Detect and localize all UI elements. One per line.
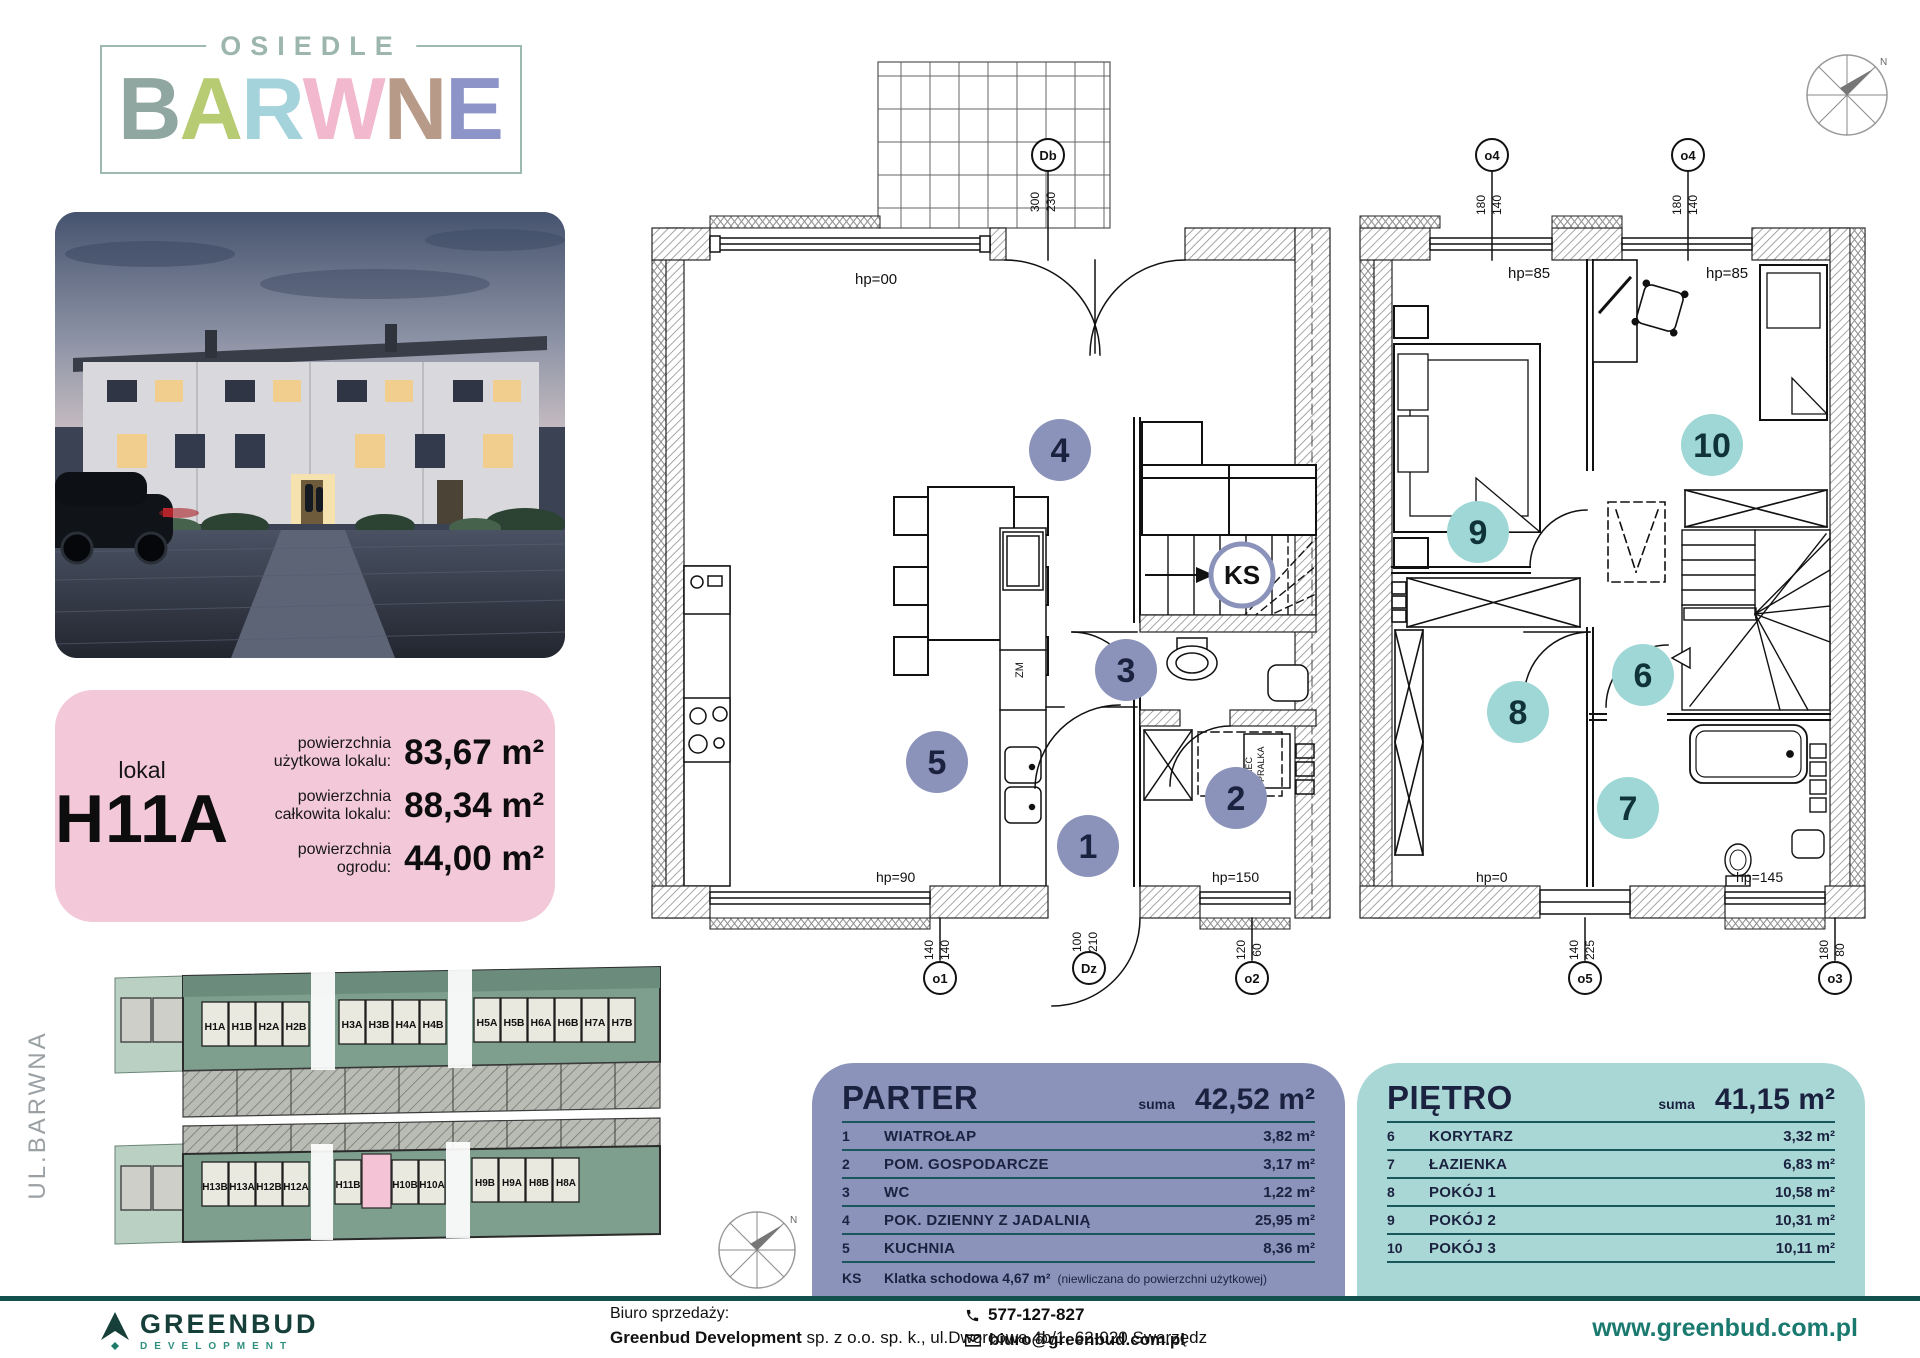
svg-text:140: 140 [1686,195,1700,215]
staircase-row: KS Klatka schodowa 4,67 m² (niewliczana … [842,1263,1315,1286]
site-unit-label: H1A [204,1021,225,1033]
stairs-up [1672,530,1830,710]
hp-label: hp=85 [1706,265,1748,282]
table-row: 1 WIATROŁAP 3,82 m² [842,1123,1315,1151]
room-number: 8 [1509,694,1528,732]
site-unit-label: H12B [256,1182,282,1193]
phone-icon [965,1308,980,1323]
site-unit-label: H6A [530,1017,551,1029]
ks-label: KS [1224,560,1260,590]
detached-house [153,1166,183,1210]
svg-text:o5: o5 [1577,971,1592,986]
svg-text:140: 140 [938,940,952,960]
svg-text:230: 230 [1044,192,1058,212]
table-row: 8 POKÓJ 1 10,58 m² [1387,1179,1835,1207]
wardrobe-9 [1392,578,1580,627]
site-unit-label: H13B [202,1182,228,1193]
window-o5 [1540,890,1630,914]
wc-sink [1268,665,1308,701]
phone-number[interactable]: 577-127-827 [988,1305,1084,1325]
logo-osiedle-barwne: OSIEDLE B A R W N E [100,45,522,174]
room-number: 10 [1693,427,1731,465]
email-icon [965,1334,981,1347]
sofa [1142,422,1316,535]
detached-house [153,998,183,1042]
wardrobe-8 [1395,630,1423,855]
site-unit-label: H10B [392,1180,418,1191]
parter-title: PARTER [842,1079,1138,1117]
usable-area-value: 83,67 m² [404,733,554,773]
svg-text:140: 140 [1567,940,1581,960]
pietro-suma-value: 41,15 m² [1715,1083,1835,1117]
site-unit-label: H7A [584,1017,605,1029]
window-top [710,236,990,252]
room-number: 7 [1619,790,1638,828]
area-row-total: powierzchniacałkowita lokalu: 88,34 m² [229,786,554,826]
area-row-usable: powierzchniaużytkowa lokalu: 83,67 m² [229,733,554,773]
room-number: 4 [1051,432,1070,470]
hp-label: hp=150 [1212,869,1259,885]
pietro-header: PIĘTRO suma 41,15 m² [1387,1079,1835,1117]
site-unit-label: H13A [229,1182,255,1193]
site-unit-label: H5A [476,1017,497,1029]
room-number: 9 [1469,514,1488,552]
greenbud-logo: GREENBUD DEVELOPMENT [100,1310,319,1352]
marker-o5: 140 225 o5 [1567,918,1601,994]
fridge [1003,532,1043,590]
window-o3 [1725,892,1825,904]
svg-text:o2: o2 [1244,971,1259,986]
svg-text:o4: o4 [1484,148,1500,163]
site-unit-label: H3A [341,1019,362,1031]
greenbud-logo-icon [100,1310,130,1352]
svg-text:Dz: Dz [1081,961,1097,976]
compass-n-label: N [1880,57,1887,68]
table-row: 7 ŁAZIENKA 6,83 m² [1387,1151,1835,1179]
parter-table: PARTER suma 42,52 m² 1 WIATROŁAP 3,82 m²… [812,1063,1345,1296]
detached-house [121,1166,151,1210]
footer: GREENBUD DEVELOPMENT Biuro sprzedaży: Gr… [0,1301,1920,1358]
email-address[interactable]: biuro@greenbud.com.pl [989,1330,1185,1350]
site-unit-label: H7B [611,1017,632,1029]
parter-suma-value: 42,52 m² [1195,1083,1315,1117]
area-rows: powierzchniaużytkowa lokalu: 83,67 m² po… [229,733,572,879]
building-photo-art [55,212,565,658]
bathtub [1690,725,1807,783]
table-row: 9 POKÓJ 2 10,31 m² [1387,1207,1835,1235]
terrace-pergola-grid [878,62,1110,228]
site-unit-label: H8A [556,1178,576,1189]
hp-label: hp=85 [1508,265,1550,282]
logo-letter: W [303,65,386,153]
logo-osiedle-text: OSIEDLE [206,31,416,62]
room-number: 5 [928,744,947,782]
svg-text:140: 140 [922,940,936,960]
hp-label: hp=90 [876,869,916,885]
marker-dz: 100 210 Dz [1070,932,1105,984]
site-unit-highlight-H11A [362,1154,391,1208]
svg-text:180: 180 [1670,195,1684,215]
site-unit-label: H5B [503,1017,524,1029]
brand-name: GREENBUD [140,1311,319,1338]
window-o4-right [1622,238,1752,250]
parter-header: PARTER suma 42,52 m² [842,1079,1315,1117]
table-row: 4 POK. DZIENNY Z JADALNIĄ 25,95 m² [842,1207,1315,1235]
site-unit-label: H3B [368,1019,389,1031]
hp-label: hp=0 [1476,869,1508,885]
unit-id-block: lokal H11A [55,757,229,855]
suma-label: suma [1658,1096,1695,1112]
table-row: 3 WC 1,22 m² [842,1179,1315,1207]
site-units-bottom: H13B H13A H12B H12A H11B H10B H10A H9B H… [202,1154,579,1208]
compass-rose: N [1807,55,1887,135]
area-row-garden: powierzchniaogrodu: 44,00 m² [229,839,554,879]
company-name: Greenbud Development [610,1328,802,1347]
floor-plans: Db 300 230 hp=00 ZM [640,10,1920,1055]
plan-pietro: o4 180 140 o4 180 140 hp=85 hp=85 [1360,139,1865,994]
garden-area-value: 44,00 m² [404,839,554,879]
site-unit-label: H4B [422,1019,443,1031]
table-row: 2 POM. GOSPODARCZE 3,17 m² [842,1151,1315,1179]
window-o4-left [1430,238,1552,250]
svg-text:80: 80 [1833,943,1847,957]
building-photo [55,212,565,658]
svg-text:60: 60 [1250,943,1264,957]
svg-text:300: 300 [1028,192,1042,212]
svg-text:o4: o4 [1680,148,1696,163]
hp-label: hp=145 [1736,869,1783,885]
site-unit-label: H2B [285,1021,306,1033]
kitchen-counter [684,566,730,886]
pietro-table: PIĘTRO suma 41,15 m² 6 KORYTARZ 3,32 m² … [1357,1063,1865,1296]
site-unit-label: H1B [231,1021,252,1033]
window-bottom-left [710,892,930,904]
site-units-top: H1A H1B H2A H2B H3A H3B H4A H4B H5A H5B … [202,998,635,1046]
lokal-label: lokal [55,757,229,784]
svg-text:Db: Db [1039,148,1056,163]
svg-text:210: 210 [1086,932,1100,952]
room-number: 3 [1117,652,1136,690]
office-chair [1632,280,1689,337]
compass-n-label: N [790,1215,797,1226]
site-row-top: H1A H1B H2A H2B H3A H3B H4A H4B H5A H5B … [115,967,660,1117]
compass-rose-small: N [700,1195,815,1305]
phone-row[interactable]: 577-127-827 [965,1305,1185,1325]
site-unit-label: H9A [502,1178,522,1189]
desk [1593,260,1637,362]
bathroom-sink [1792,830,1824,858]
plan-parter: Db 300 230 hp=00 ZM [652,62,1330,1006]
pietro-title: PIĘTRO [1387,1079,1658,1117]
logo-letter: B [118,65,182,153]
logo-letter: R [241,65,305,153]
zm-label: ZM [1014,662,1026,678]
site-unit-label: H8B [529,1178,549,1189]
single-bed [1760,265,1827,420]
room-number: 6 [1634,657,1653,695]
logo-letter: E [445,65,504,153]
svg-text:180: 180 [1817,940,1831,960]
logo-letter: A [180,65,244,153]
table-row: 6 KORYTARZ 3,32 m² [1387,1123,1835,1151]
svg-text:o1: o1 [932,971,947,986]
email-row[interactable]: biuro@greenbud.com.pl [965,1330,1185,1350]
window-bottom-right [1200,892,1290,904]
room-number: 1 [1079,828,1098,866]
unit-number: H11A [55,784,229,855]
site-unit-label: H11B [335,1180,360,1191]
table-row: 5 KUCHNIA 8,36 m² [842,1235,1315,1263]
wardrobe-10 [1685,490,1827,527]
unit-summary-card: lokal H11A powierzchniaużytkowa lokalu: … [55,690,555,922]
room-number: 2 [1227,780,1246,818]
svg-text:180: 180 [1474,195,1488,215]
site-unit-label: H12A [283,1182,309,1193]
detached-house [121,998,151,1042]
site-unit-label: H9B [475,1178,495,1189]
website-link[interactable]: www.greenbud.com.pl [1592,1314,1858,1343]
svg-text:o3: o3 [1827,971,1842,986]
street-label: UL.BARWNA [24,1030,51,1199]
logo-barwne-word: B A R W N E [102,65,520,153]
site-unit-label: H10A [419,1180,445,1191]
shaft [1608,502,1665,582]
table-row: 10 POKÓJ 3 10,11 m² [1387,1235,1835,1263]
site-row-bottom: H13B H13A H12B H12A H11B H10B H10A H9B H… [115,1118,660,1244]
suma-label: suma [1138,1096,1175,1112]
site-plan: UL.BARWNA H1A H1B H2A H2B H3A H3B H4A H4… [15,950,675,1295]
svg-text:225: 225 [1583,940,1597,960]
logo-letter: N [384,65,448,153]
site-unit-label: H4A [395,1019,416,1031]
svg-text:100: 100 [1070,932,1084,952]
kitchen-island [1000,528,1046,886]
contact-block: 577-127-827 biuro@greenbud.com.pl [965,1305,1185,1350]
svg-text:120: 120 [1234,940,1248,960]
svg-text:140: 140 [1490,195,1504,215]
entrance-door-db [1005,260,1185,355]
site-unit-label: H6B [557,1017,578,1029]
hp-label: hp=00 [855,271,897,288]
brand-subtitle: DEVELOPMENT [140,1341,319,1352]
site-unit-label: H2A [258,1021,279,1033]
total-area-value: 88,34 m² [404,786,554,826]
